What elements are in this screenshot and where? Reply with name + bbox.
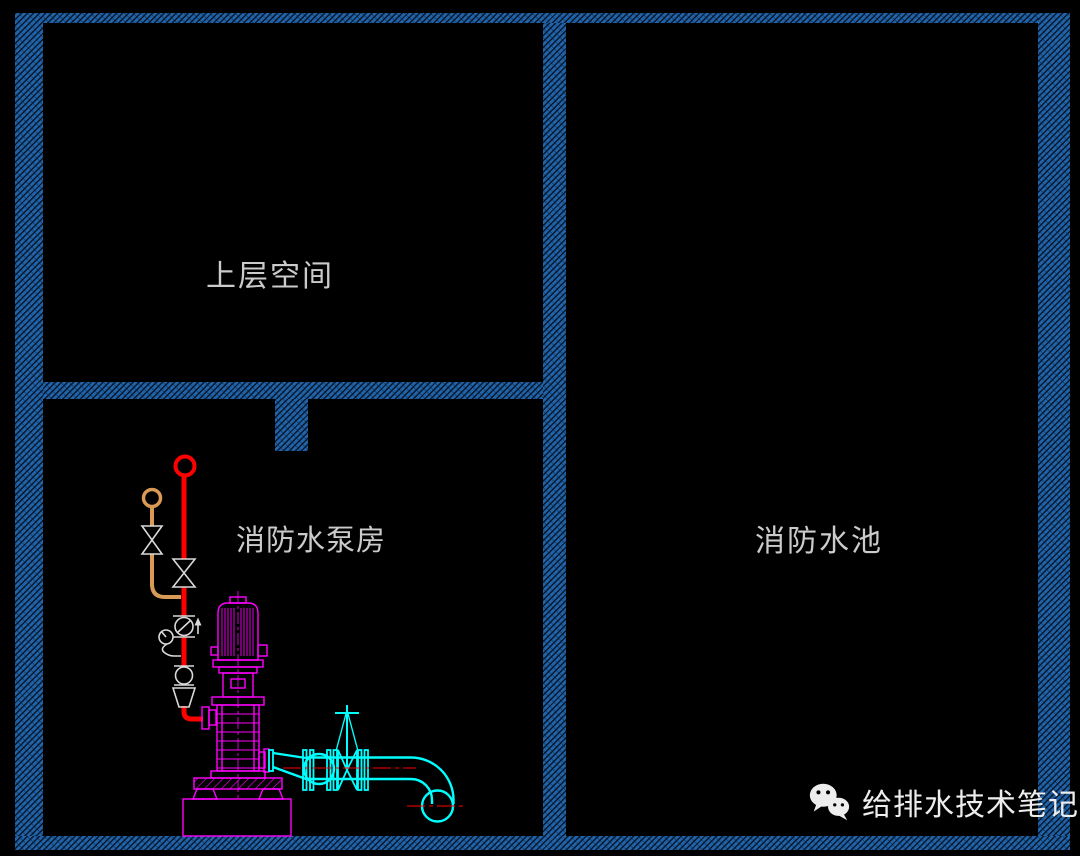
motor-body (218, 603, 258, 660)
gate-valve-icon (142, 526, 162, 554)
gate-valve-icon (173, 559, 195, 587)
motor-fins (222, 608, 253, 656)
discharge-nozzle (209, 710, 216, 725)
pump-baseplate (194, 778, 282, 789)
riser-fittings (142, 526, 202, 707)
fire-pump (183, 591, 291, 836)
reducer-icon (173, 688, 195, 707)
piping-drawing (0, 0, 1080, 856)
pump-foundation (183, 799, 291, 836)
suction-pipe (269, 705, 454, 822)
check-valve-icon (173, 616, 202, 637)
watermark: 给排水技术笔记 (806, 779, 1079, 825)
watermark-text: 给排水技术笔记 (862, 780, 1079, 824)
flexible-joint-icon (174, 666, 194, 685)
cad-section-drawing: 上层空间 消防水泵房 消防水池 (0, 0, 1080, 856)
wechat-icon (806, 779, 852, 825)
